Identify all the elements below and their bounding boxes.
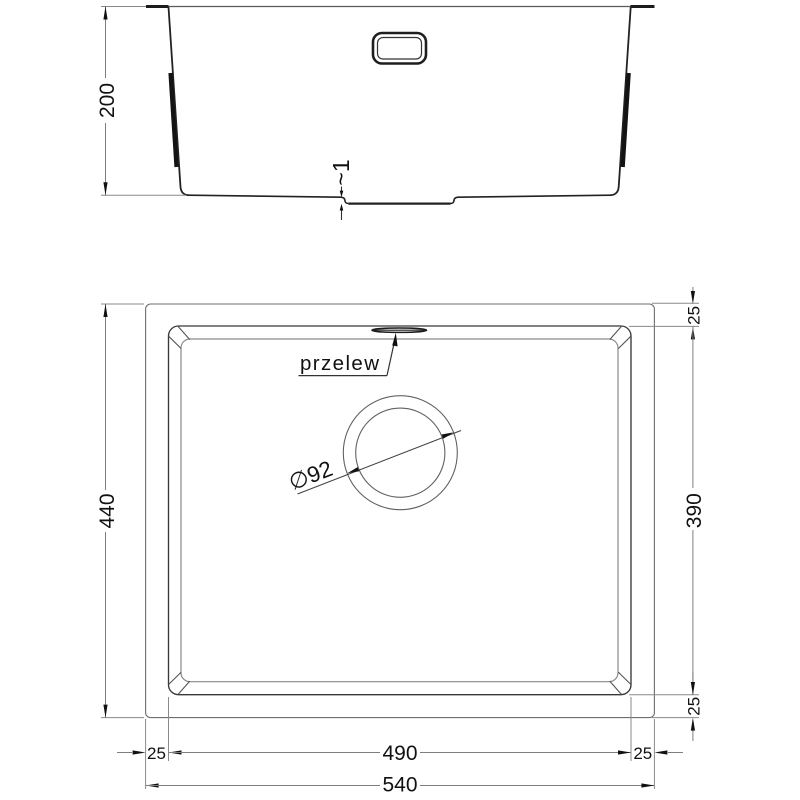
svg-text:25: 25 xyxy=(685,306,704,325)
svg-text:440: 440 xyxy=(96,493,119,528)
svg-text:25: 25 xyxy=(633,744,652,763)
svg-text:540: 540 xyxy=(382,774,417,797)
svg-text:~1: ~1 xyxy=(328,159,354,185)
svg-text:490: 490 xyxy=(382,742,417,765)
svg-text:25: 25 xyxy=(685,697,704,716)
svg-text:390: 390 xyxy=(683,493,706,528)
svg-text:25: 25 xyxy=(147,744,166,763)
svg-text:200: 200 xyxy=(96,83,119,118)
svg-text:przelew: przelew xyxy=(300,352,380,375)
